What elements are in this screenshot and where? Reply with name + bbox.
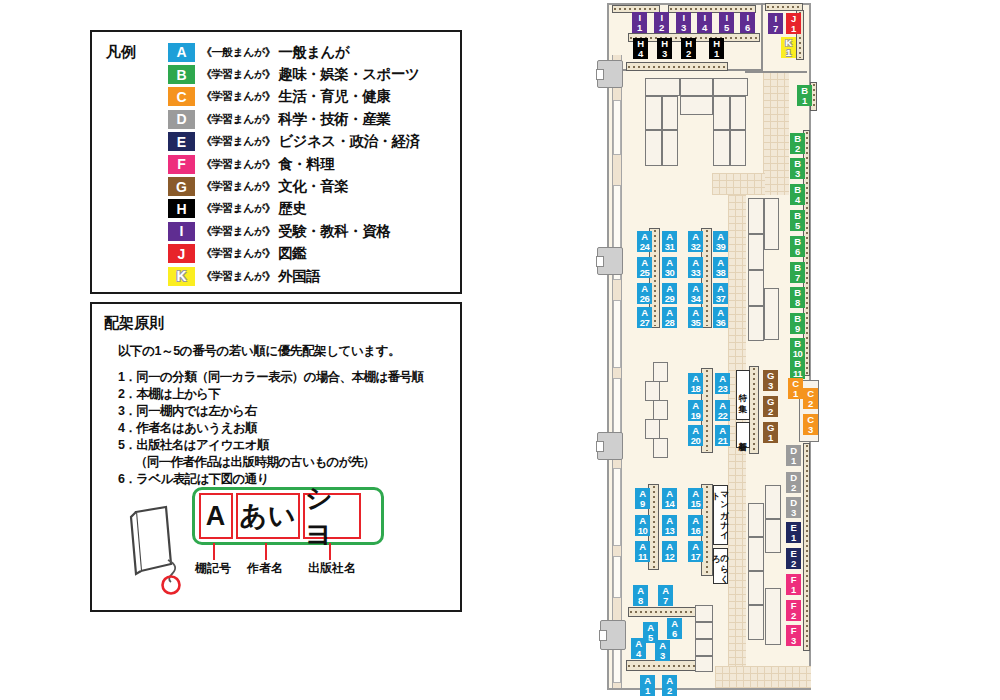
bookshelf-strip (749, 366, 759, 454)
furniture-box (730, 96, 746, 130)
rule-item-5: 5．出版社名はアイウエオ順 (118, 437, 452, 454)
legend-color-chip-J: J (168, 244, 195, 263)
shelf-label-H4: H4 (633, 38, 648, 59)
shelf-label-F1: F1 (786, 574, 801, 595)
rule-item-4: 4．作者名はあいうえお順 (118, 420, 452, 437)
label-example-caption: 棚記号 (195, 560, 231, 577)
furniture-box (748, 571, 764, 605)
shelf-label-A24: A24 (637, 231, 652, 252)
label-example-caption: 出版社名 (308, 560, 356, 577)
furniture-box (662, 130, 678, 166)
legend-item-D: D《学習まんが》科学・技術・産業 (168, 108, 450, 130)
shelf-label-A20: A20 (688, 425, 703, 446)
shelf-label-I3: I3 (676, 12, 691, 33)
shelf-label-A25: A25 (637, 257, 652, 278)
furniture-box (645, 419, 660, 439)
shelf-label-A22: A22 (715, 400, 730, 421)
shelf-label-C1: C1 (788, 378, 803, 399)
wall-opening (613, 100, 621, 155)
shelf-label-A30: A30 (662, 257, 677, 278)
door (597, 432, 623, 460)
shelf-label-A11: A11 (635, 541, 650, 562)
furniture-box (645, 78, 680, 96)
shelf-label-A39: A39 (713, 231, 728, 252)
furniture-box (730, 130, 746, 166)
furniture-box (748, 306, 764, 341)
legend-color-chip-H: H (168, 199, 195, 218)
furniture-box (695, 656, 713, 672)
shelf-label-A12: A12 (662, 541, 677, 562)
shelf-label-I5: I5 (719, 12, 734, 33)
bookshelf-strip (626, 660, 705, 671)
rules-intro: 以下の1～5の番号の若い順に優先配架しています。 (118, 343, 452, 360)
shelf-label-A29: A29 (662, 283, 677, 304)
furniture-box (645, 96, 662, 130)
furniture-box (662, 96, 678, 130)
label-example-segment-3: シヨ (303, 493, 361, 539)
wall-opening (613, 468, 621, 546)
shelf-label-G2: G2 (763, 396, 778, 417)
legend-scope: 《学習まんが》 (201, 157, 275, 172)
shelf-label-F2: F2 (786, 600, 801, 621)
shelf-label-A8: A8 (633, 585, 648, 606)
shelf-label-A3: A3 (655, 640, 670, 661)
legend-category-label: 文化・音楽 (278, 177, 348, 196)
shelf-label-B3: B3 (790, 158, 805, 179)
legend-scope: 《学習まんが》 (201, 224, 275, 239)
legend-item-A: A《一般まんが》一般まんが (168, 41, 450, 63)
legend-color-chip-D: D (168, 110, 195, 129)
bookshelf-strip (765, 3, 803, 11)
rule-item-3: 3．同一棚内では左から右 (118, 403, 452, 420)
shelf-label-A15: A15 (688, 488, 703, 509)
legend-item-K: K《学習まんが》外国語 (168, 265, 450, 287)
door (597, 60, 623, 88)
furniture-box (645, 130, 662, 166)
shelf-label-A36: A36 (713, 307, 728, 328)
shelf-label-A10: A10 (635, 515, 650, 536)
label-example-segment-2: あい (236, 493, 300, 539)
legend-item-E: E《学習まんが》ビジネス・政治・経済 (168, 131, 450, 153)
legend-color-chip-B: B (168, 65, 195, 84)
shelf-label-A35: A35 (688, 307, 703, 328)
shelf-label-I2: I2 (654, 12, 669, 33)
area-label-feature: 特集 (736, 370, 750, 420)
manga-library-floor-guide: 凡例 A《一般まんが》一般まんがB《学習まんが》趣味・娯楽・スポーツC《学習まん… (0, 0, 1000, 700)
legend-item-C: C《学習まんが》生活・育児・健康 (168, 86, 450, 108)
shelf-label-A21: A21 (715, 425, 730, 446)
furniture-box (680, 78, 713, 96)
shelf-label-A26: A26 (637, 283, 652, 304)
legend-category-label: 趣味・娯楽・スポーツ (278, 65, 419, 84)
corridor-floor (712, 173, 765, 195)
label-example-leader-line (265, 543, 267, 560)
legend-list: A《一般まんが》一般まんがB《学習まんが》趣味・娯楽・スポーツC《学習まんが》生… (168, 41, 450, 287)
wall-opening (613, 300, 621, 368)
rule-item-6: （同一作者作品は出版時期の古いものが先） (118, 454, 452, 471)
shelf-label-B11: B11 (790, 358, 805, 379)
furniture-box (764, 288, 779, 340)
shelf-label-B1: B1 (797, 85, 812, 106)
corridor-floor (763, 72, 789, 195)
shelf-label-D2: D2 (786, 472, 801, 493)
wall-line (745, 71, 807, 73)
shelf-label-B9: B9 (790, 313, 805, 334)
bookshelf-strip (803, 443, 810, 651)
label-example-segment-1: A (199, 493, 233, 539)
legend-scope: 《学習まんが》 (201, 246, 275, 261)
shelf-label-E1: E1 (786, 522, 801, 543)
wall-opening (613, 648, 621, 683)
rule-item-7: 6．ラベル表記は下図の通り (118, 471, 452, 488)
legend-scope: 《学習まんが》 (201, 89, 275, 104)
shelf-label-G3: G3 (763, 370, 778, 391)
shelf-label-A4: A4 (631, 638, 646, 659)
shelf-label-B8: B8 (790, 287, 805, 308)
furniture-box (645, 381, 660, 401)
shelf-label-D1: D1 (786, 445, 801, 466)
legend-item-B: B《学習まんが》趣味・娯楽・スポーツ (168, 63, 450, 85)
wall-line (761, 3, 763, 71)
door (600, 620, 626, 650)
shelf-label-A31: A31 (662, 231, 677, 252)
corridor-floor (715, 666, 811, 688)
shelf-label-A2: A2 (662, 675, 677, 696)
rules-title: 配架原則 (104, 314, 452, 333)
furniture-box (748, 537, 764, 571)
shelf-label-A32: A32 (688, 231, 703, 252)
shelf-label-A1: A1 (640, 675, 655, 696)
legend-category-label: 科学・技術・産業 (278, 110, 390, 129)
legend-item-I: I《学習まんが》受験・教科・資格 (168, 220, 450, 242)
shelf-label-A23: A23 (715, 373, 730, 394)
door (597, 247, 623, 275)
furniture-box (695, 622, 713, 639)
shelf-label-A17: A17 (688, 541, 703, 562)
legend-category-label: 図鑑 (278, 244, 306, 263)
bookshelf-strip (626, 62, 728, 71)
legend-color-chip-C: C (168, 87, 195, 106)
legend-category-label: 歴史 (278, 199, 306, 218)
furniture-box (680, 96, 713, 115)
furniture-box (764, 198, 779, 250)
label-example-leader-line (329, 543, 331, 560)
shelf-label-B2: B2 (790, 133, 805, 154)
furniture-box (695, 605, 713, 622)
shelf-label-I7: I7 (768, 13, 783, 34)
legend-color-chip-A: A (168, 43, 195, 62)
shelf-label-A19: A19 (688, 400, 703, 421)
furniture-box (748, 605, 764, 640)
label-example-caption: 作者名 (247, 560, 283, 577)
legend-scope: 《一般まんが》 (201, 45, 275, 60)
shelf-label-C3: C3 (803, 414, 818, 435)
legend-color-chip-E: E (168, 132, 195, 151)
furniture-box (713, 78, 748, 96)
shelf-label-I1: I1 (632, 12, 647, 33)
area-label-new: 新着 (736, 422, 750, 448)
book-icon (120, 502, 184, 598)
rules-list: 1．同一の分類（同一カラー表示）の場合、本棚は番号順2．本棚は上から下3．同一棚… (104, 369, 452, 488)
shelf-label-K1: K1 (781, 37, 796, 58)
shelf-label-D3: D3 (786, 497, 801, 518)
legend-item-G: G《学習まんが》文化・音楽 (168, 175, 450, 197)
shelf-label-I6: I6 (740, 12, 755, 33)
furniture-box (765, 519, 781, 553)
shelf-label-A27: A27 (637, 307, 652, 328)
rule-item-1: 1．同一の分類（同一カラー表示）の場合、本棚は番号順 (118, 369, 452, 386)
rule-item-2: 2．本棚は上から下 (118, 386, 452, 403)
shelf-label-I4: I4 (697, 12, 712, 33)
furniture-box (653, 438, 668, 458)
legend-category-label: 受験・教科・資格 (278, 222, 390, 241)
legend-color-chip-K: K (168, 267, 195, 286)
legend-scope: 《学習まんが》 (201, 112, 275, 127)
furniture-box (695, 639, 713, 656)
furniture-box (748, 234, 764, 270)
furniture-box (713, 96, 730, 130)
shelf-label-G1: G1 (763, 422, 778, 443)
legend-category-label: ビジネス・政治・経済 (278, 132, 419, 151)
legend-color-chip-I: I (168, 222, 195, 241)
shelf-label-A13: A13 (662, 515, 677, 536)
legend-category-label: 外国語 (278, 267, 320, 286)
legend-item-J: J《学習まんが》図鑑 (168, 243, 450, 265)
shelf-label-B6: B6 (790, 236, 805, 257)
furniture-box (748, 198, 764, 234)
shelf-label-B5: B5 (790, 210, 805, 231)
shelf-label-H1: H1 (709, 38, 724, 59)
shelf-label-A9: A9 (635, 488, 650, 509)
legend-scope: 《学習まんが》 (201, 134, 275, 149)
shelf-label-A16: A16 (688, 515, 703, 536)
label-example-leader-line (213, 543, 215, 560)
legend-color-chip-F: F (168, 155, 195, 174)
shelf-label-E2: E2 (786, 548, 801, 569)
furniture-box (653, 400, 668, 420)
shelf-label-A37: A37 (713, 283, 728, 304)
furniture-box (748, 503, 764, 537)
shelf-label-A6: A6 (667, 618, 682, 639)
legend-title: 凡例 (106, 43, 136, 62)
legend-scope: 《学習まんが》 (201, 201, 275, 216)
legend-category-label: 食・料理 (278, 155, 334, 174)
furniture-box (713, 130, 730, 166)
bookshelf-strip (628, 607, 701, 617)
shelf-label-J1: J1 (786, 13, 801, 34)
shelf-label-B4: B4 (790, 184, 805, 205)
label-example: Aあいシヨ (192, 487, 384, 545)
area-label-norakuro: のらくろ (713, 548, 728, 584)
floor-map: 特集新着マンガナイトのらくろI1I2I3I4I5I6I7J1K1H4H3H2H1… (595, 0, 830, 700)
shelf-label-A7: A7 (658, 585, 673, 606)
legend-color-chip-G: G (168, 177, 195, 196)
legend-scope: 《学習まんが》 (201, 179, 275, 194)
shelf-label-A28: A28 (662, 307, 677, 328)
shelf-label-H2: H2 (681, 38, 696, 59)
shelving-rules-panel: 配架原則 以下の1～5の番号の若い順に優先配架しています。 1．同一の分類（同一… (90, 302, 462, 612)
legend-item-F: F《学習まんが》食・料理 (168, 153, 450, 175)
area-label-manga_night: マンガナイト (713, 485, 728, 545)
legend-item-H: H《学習まんが》歴史 (168, 198, 450, 220)
legend-category-label: 生活・育児・健康 (278, 87, 390, 106)
shelf-label-F3: F3 (786, 625, 801, 646)
shelf-label-A38: A38 (713, 257, 728, 278)
shelf-label-H3: H3 (657, 38, 672, 59)
wall-opening (613, 556, 621, 598)
shelf-label-B10: B10 (790, 338, 805, 359)
furniture-box (653, 362, 668, 382)
furniture-box (765, 588, 781, 645)
shelf-label-B7: B7 (790, 262, 805, 283)
shelf-label-A18: A18 (688, 373, 703, 394)
shelf-label-A34: A34 (688, 283, 703, 304)
shelf-label-C2: C2 (803, 388, 818, 409)
legend-scope: 《学習まんが》 (201, 67, 275, 82)
shelf-label-A14: A14 (662, 488, 677, 509)
shelf-label-A33: A33 (688, 257, 703, 278)
furniture-box (765, 485, 781, 519)
legend-category-label: 一般まんが (278, 43, 349, 62)
legend-panel: 凡例 A《一般まんが》一般まんがB《学習まんが》趣味・娯楽・スポーツC《学習まん… (90, 30, 462, 294)
legend-scope: 《学習まんが》 (201, 269, 275, 284)
furniture-box (748, 270, 764, 306)
